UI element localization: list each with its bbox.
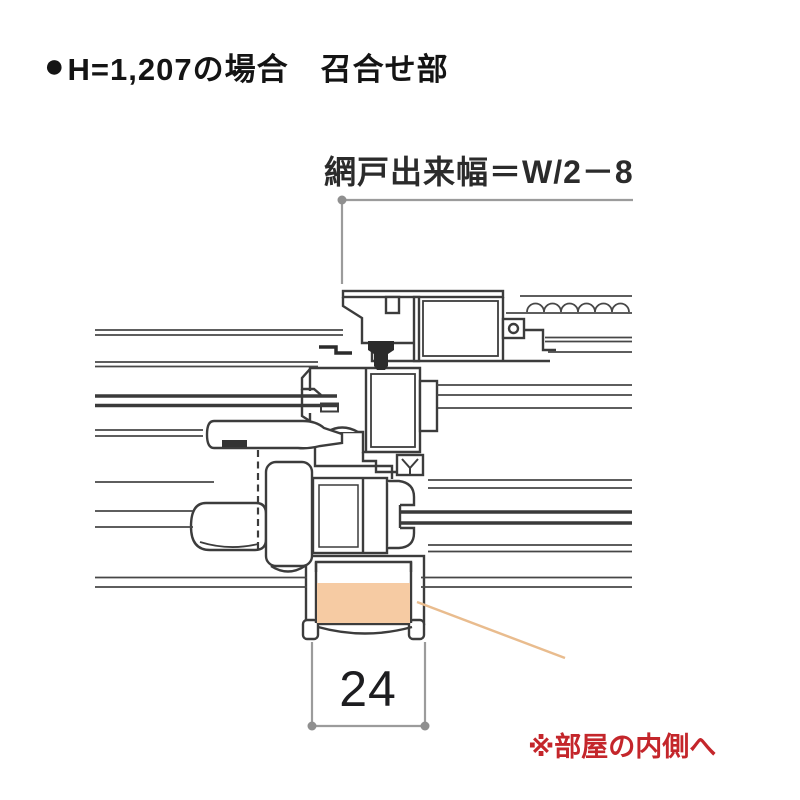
title-bullet: ● <box>44 51 66 82</box>
z-gasket <box>319 347 352 353</box>
dimension-leader-lines <box>312 200 633 726</box>
arm-dark-tick <box>222 440 247 447</box>
upper-meeting-stile <box>302 368 437 479</box>
mohair-scallops <box>527 304 629 313</box>
glass-line-thick-right <box>400 512 632 523</box>
room-note: ※部屋の内側へ 飛び出します <box>528 660 717 800</box>
glass-line-thick-left <box>95 396 337 406</box>
page: ● H=1,207の場合 召合せ部 網戸出来幅＝W/2－8 24 ※部屋の内側へ… <box>0 0 800 800</box>
leader-dot <box>338 196 347 205</box>
dimension-dot-right <box>421 722 430 731</box>
glazing-bead <box>266 462 312 566</box>
dimension-dot-left <box>308 722 317 731</box>
bottom-protrusion-cap <box>303 556 424 639</box>
orange-highlight <box>317 583 410 623</box>
orange-leader-line <box>417 602 565 658</box>
screen-width-label: 網戸出来幅＝W/2－8 <box>324 147 634 193</box>
note-line-1: ※部屋の内側へ <box>528 730 717 765</box>
dimension-24-value: 24 <box>322 660 414 718</box>
page-title: ● H=1,207の場合 召合せ部 <box>44 44 449 89</box>
title-text: H=1,207の場合 召合せ部 <box>68 44 449 89</box>
lower-meeting-stile <box>313 478 414 553</box>
